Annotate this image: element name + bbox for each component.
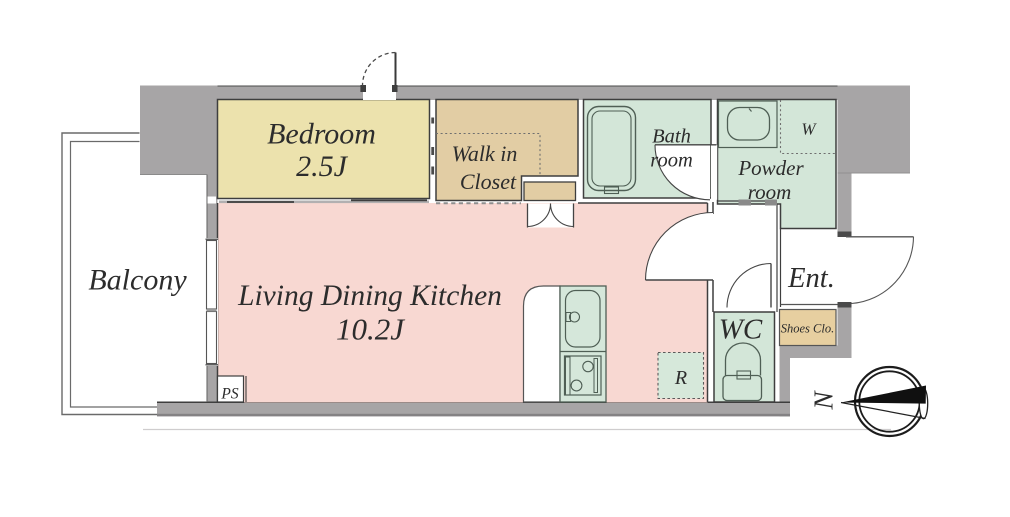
svg-text:room: room [748,180,792,204]
svg-text:W: W [801,120,817,139]
svg-text:R: R [674,367,687,389]
svg-text:Living Dining Kitchen: Living Dining Kitchen [237,280,502,312]
svg-text:Shoes Clo.: Shoes Clo. [781,322,834,336]
svg-text:Ent.: Ent. [787,263,835,294]
svg-text:room: room [650,150,693,172]
svg-text:Powder: Powder [737,156,804,180]
svg-text:10.2J: 10.2J [336,312,405,347]
svg-text:N: N [809,390,839,411]
svg-text:Closet: Closet [460,169,517,194]
svg-text:Walk in: Walk in [452,141,518,166]
svg-text:PS: PS [220,386,238,403]
svg-text:Bedroom: Bedroom [267,118,376,151]
svg-text:2.5J: 2.5J [296,150,349,183]
svg-text:WC: WC [719,314,763,346]
svg-text:Bath: Bath [652,126,691,148]
svg-text:Balcony: Balcony [88,264,187,297]
